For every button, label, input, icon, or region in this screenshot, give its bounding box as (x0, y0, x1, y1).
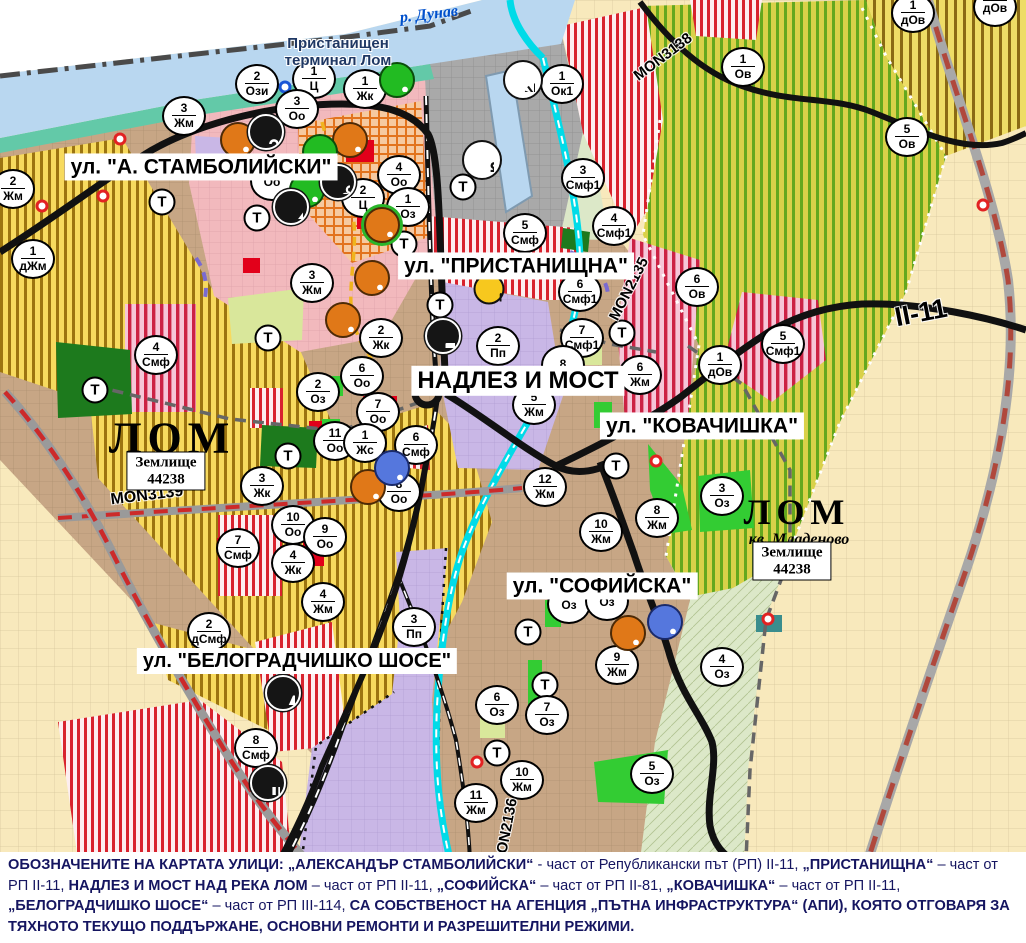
legend-segment: – част от РП III-114, (208, 898, 349, 914)
production-zone (440, 282, 563, 470)
legend-segment: НАДЛЕЗ И МОСТ НАД РЕКА ЛОМ (69, 878, 308, 894)
legend-segment: - част от Републикански път (РП) II-11, (533, 857, 802, 873)
production-zone (195, 136, 230, 163)
legend-text: ОБОЗНАЧЕНИТЕ НА КАРТАТА УЛИЦИ: „АЛЕКСАНД… (8, 855, 1018, 938)
mixed-zone (690, 0, 762, 40)
legend-segment: ОБОЗНАЧЕНИТЕ НА КАРТАТА УЛИЦИ: „АЛЕКСАНД… (8, 857, 533, 873)
mixed-zone (218, 515, 282, 596)
legend-segment: – част от РП II-11, (775, 878, 900, 894)
legend-segment: „ПРИСТАНИЩНА“ (802, 857, 933, 873)
legend-segment: – част от РП II-81, (536, 878, 666, 894)
legend-segment: – част от РП II-11, (308, 878, 437, 894)
legend-segment: „БЕЛОГРАДЧИШКО ШОСЕ“ (8, 898, 208, 914)
map-zones-layer (0, 0, 1026, 943)
legend-segment: „СОФИЙСКА“ (437, 878, 537, 894)
legend-bar: ОБОЗНАЧЕНИТЕ НА КАРТАТА УЛИЦИ: „АЛЕКСАНД… (0, 852, 1026, 943)
legend-segment: „КОВАЧИШКА“ (666, 878, 775, 894)
map-canvas[interactable]: ТТТТТТТТТТТТТ2Ози1Ц1Жк3Оо3Жм1Ок12Жм1дЖмО… (0, 0, 1026, 943)
